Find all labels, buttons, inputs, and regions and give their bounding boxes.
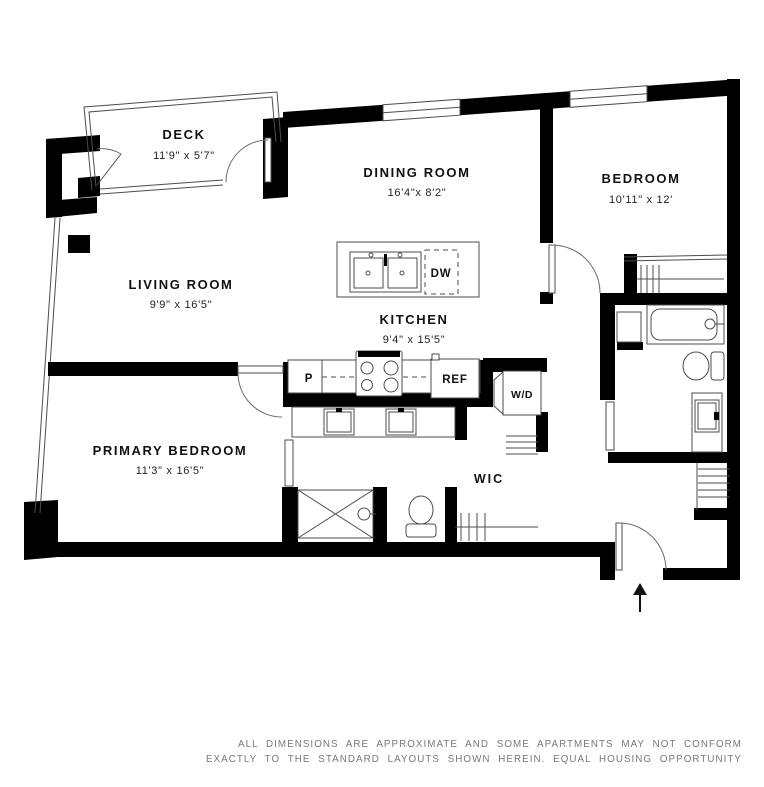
primary-bath-fixtures: [292, 407, 455, 538]
island-sink-icon: [350, 252, 421, 292]
window-wall-post: [68, 235, 90, 253]
primary-bedroom-label: PRIMARY BEDROOM: [93, 443, 248, 458]
vestibule-wall: [78, 176, 100, 198]
dining-bedroom-wall: [540, 100, 553, 243]
deck-railing-inner: [89, 97, 276, 187]
vanity-sink-icon: [386, 408, 416, 435]
bedroom-door-leaf: [549, 245, 555, 293]
vanity-side-column: [455, 407, 467, 440]
walk-in-closet: [455, 436, 538, 541]
bedroom-label: BEDROOM: [601, 171, 680, 186]
top-wall-segment: [283, 105, 383, 128]
floorplan-drawing: DW P REF W/D: [0, 0, 764, 787]
shower-left-wall: [282, 487, 298, 542]
double-vanity-counter: [292, 407, 455, 437]
disclaimer: ALL DIMENSIONS ARE APPROXIMATE AND SOME …: [206, 739, 742, 765]
floorplan-page: DW P REF W/D: [0, 0, 764, 787]
dining-room-label: DINING ROOM: [363, 165, 470, 180]
wic-label: WIC: [474, 472, 504, 486]
entry-step-wall: [600, 542, 615, 580]
bedroom-door-swing: [552, 245, 600, 293]
entry-arrow-icon: [633, 583, 647, 612]
kitchen-dims: 9'4" x 15'5": [383, 334, 446, 346]
bedroom-closet: [624, 255, 727, 293]
bath-bottom-wall: [608, 452, 727, 463]
vanity-sink-icon: [324, 408, 354, 435]
disclaimer-line-2: EXACTLY TO THE STANDARD LAYOUTS SHOWN HE…: [206, 754, 742, 765]
primary-bedroom-dims: 11'3" x 16'5": [136, 465, 205, 477]
bottom-left-corner: [24, 500, 58, 560]
kitchen-label: KITCHEN: [380, 312, 449, 327]
entry-closet-shelves: [697, 463, 730, 510]
living-room-label: LIVING ROOM: [129, 277, 234, 292]
stove-icon: [356, 351, 402, 396]
right-wall: [727, 79, 740, 580]
wd-closet-side-wall: [536, 412, 548, 452]
primary-bath-door-leaf: [285, 440, 293, 486]
deck-door-swing: [226, 140, 268, 182]
bottom-wall: [43, 542, 613, 557]
entry-bottom-wall: [663, 568, 740, 580]
primary-bedroom-door-swing: [238, 373, 282, 417]
toilet-side-wall: [445, 487, 457, 543]
washer-dryer-icon: W/D: [494, 371, 541, 415]
deck-window: [100, 185, 223, 194]
toilet-icon: [406, 496, 436, 537]
kitchen-fixtures: DW P REF W/D: [288, 242, 541, 415]
top-wall-segment: [460, 91, 570, 115]
entry-closet-cap: [694, 508, 727, 520]
deck-dims: 11'9" x 5'7": [153, 150, 215, 162]
bathtub-icon: [647, 305, 724, 344]
linen-niche: [617, 312, 641, 342]
bedroom-closet-bottom-wall: [600, 293, 727, 305]
deck-left-door-leaf: [97, 154, 121, 185]
refrigerator: REF: [431, 354, 479, 398]
deck-left-door-swing: [97, 149, 121, 154]
bedroom-door-stub: [540, 292, 553, 304]
bath-vanity-sink-icon: [692, 393, 722, 452]
refrigerator-label: REF: [442, 374, 467, 386]
wd-closet-top-wall: [483, 358, 547, 372]
bath-left-wall: [600, 293, 615, 400]
top-wall-segment: [647, 79, 740, 102]
hall-bath-fixtures: [617, 305, 724, 452]
deck-window: [100, 180, 223, 189]
primary-bedroom-top-wall: [48, 362, 238, 376]
bath-niche-stub: [617, 342, 643, 350]
deck-door-leaf: [265, 138, 271, 182]
disclaimer-line-1: ALL DIMENSIONS ARE APPROXIMATE AND SOME …: [238, 739, 742, 750]
bathroom-door-leaf: [606, 402, 614, 450]
entry-door-leaf: [616, 523, 622, 570]
bedroom-dims: 10'11" x 12': [609, 194, 673, 206]
living-room-dims: 9'9" x 16'5": [150, 299, 213, 311]
primary-bedroom-door-leaf: [238, 366, 283, 373]
pantry-label: P: [305, 373, 313, 385]
dining-room-dims: 16'4"x 8'2": [388, 187, 447, 199]
dishwasher-label: DW: [431, 268, 452, 280]
shower-icon: [298, 490, 376, 538]
deck-label: DECK: [162, 127, 205, 142]
entry-door-swing: [619, 523, 666, 570]
washer-dryer-label: W/D: [511, 389, 533, 401]
toilet-icon: [683, 352, 724, 380]
